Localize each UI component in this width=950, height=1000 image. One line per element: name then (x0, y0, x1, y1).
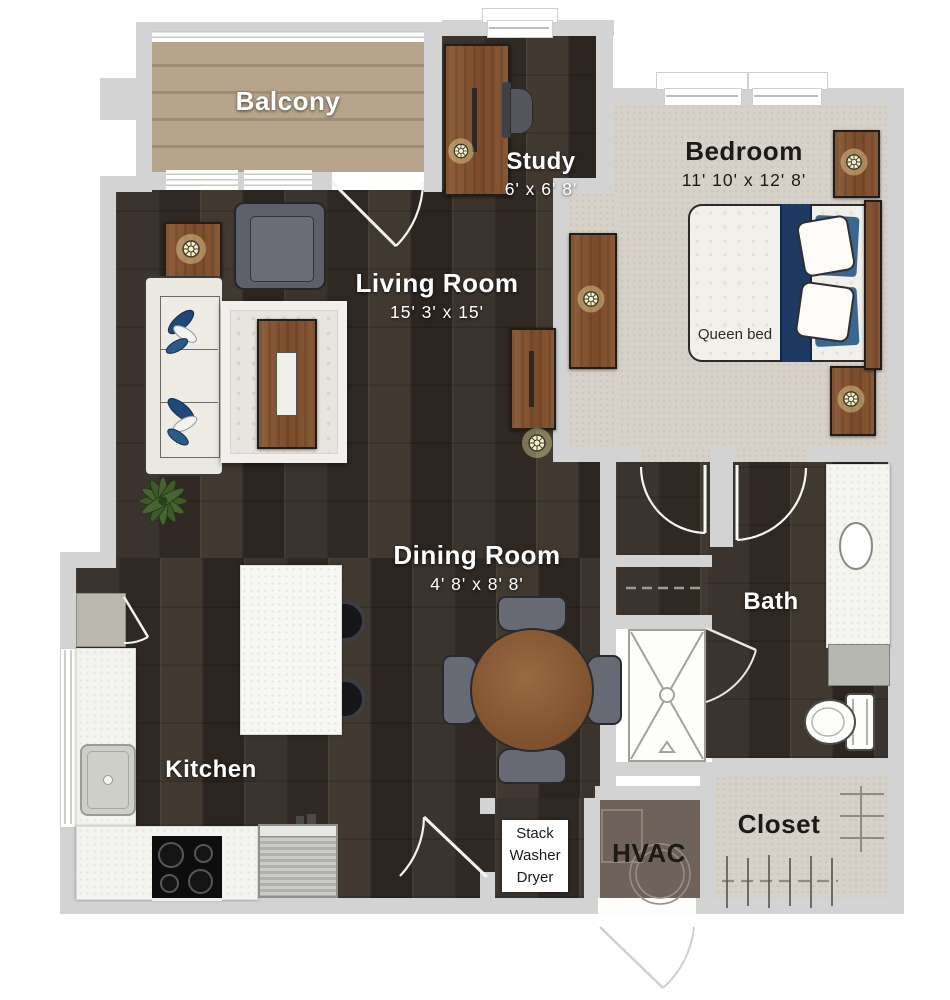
dining-room-label: Dining Room 4' 8' x 8' 8' (393, 540, 560, 595)
study-label: Study 6' x 6' 8' (505, 148, 578, 200)
bath-sink-icon (840, 523, 872, 569)
lamp-icon (578, 286, 605, 313)
bedroom-label: Bedroom 11' 10' x 12' 8' (682, 136, 806, 191)
shower-glass-icon (631, 632, 703, 759)
bath-door (737, 465, 806, 540)
bath-label: Bath (743, 588, 798, 616)
plant-icon (139, 477, 187, 525)
lamp-icon (522, 428, 552, 458)
closet-label: Closet (738, 809, 820, 840)
living-room-label: Living Room 15' 3' x 15' (356, 268, 519, 323)
shower-door (706, 628, 756, 702)
lamp-icon (841, 149, 868, 176)
lamp-icon (838, 386, 865, 413)
bedroom-door (641, 465, 705, 533)
balcony-door (332, 182, 423, 246)
balcony-label: Balcony (236, 86, 341, 117)
lamp-icon (448, 138, 474, 164)
linework-layer (0, 0, 950, 1000)
queen-bed-label: Queen bed (698, 326, 772, 343)
kitchen-label: Kitchen (165, 756, 257, 784)
closet-shelves-icon (840, 786, 884, 852)
laundry-door (400, 817, 487, 877)
toilet-icon (805, 694, 874, 750)
floor-plan: Balcony Study 6' x 6' 8' Bedroom 11' 10'… (0, 0, 950, 1000)
pantry-door (124, 597, 148, 643)
hvac-label: HVAC (612, 838, 686, 869)
entry-door (600, 927, 694, 988)
lamp-icon (176, 234, 206, 264)
closet-rod-icon (722, 855, 838, 908)
sofa-pillow-icon (165, 395, 199, 448)
sofa-pillow-icon (164, 306, 199, 356)
